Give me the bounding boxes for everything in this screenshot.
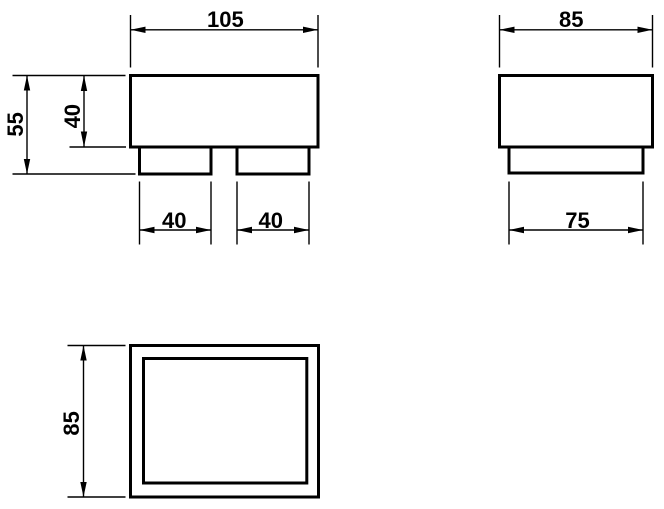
svg-text:40: 40 — [258, 208, 282, 233]
svg-text:40: 40 — [60, 104, 85, 128]
svg-text:105: 105 — [207, 7, 244, 32]
svg-text:55: 55 — [3, 112, 28, 136]
svg-text:75: 75 — [565, 208, 589, 233]
svg-text:85: 85 — [59, 411, 84, 435]
svg-text:85: 85 — [559, 7, 583, 32]
svg-text:40: 40 — [162, 208, 186, 233]
